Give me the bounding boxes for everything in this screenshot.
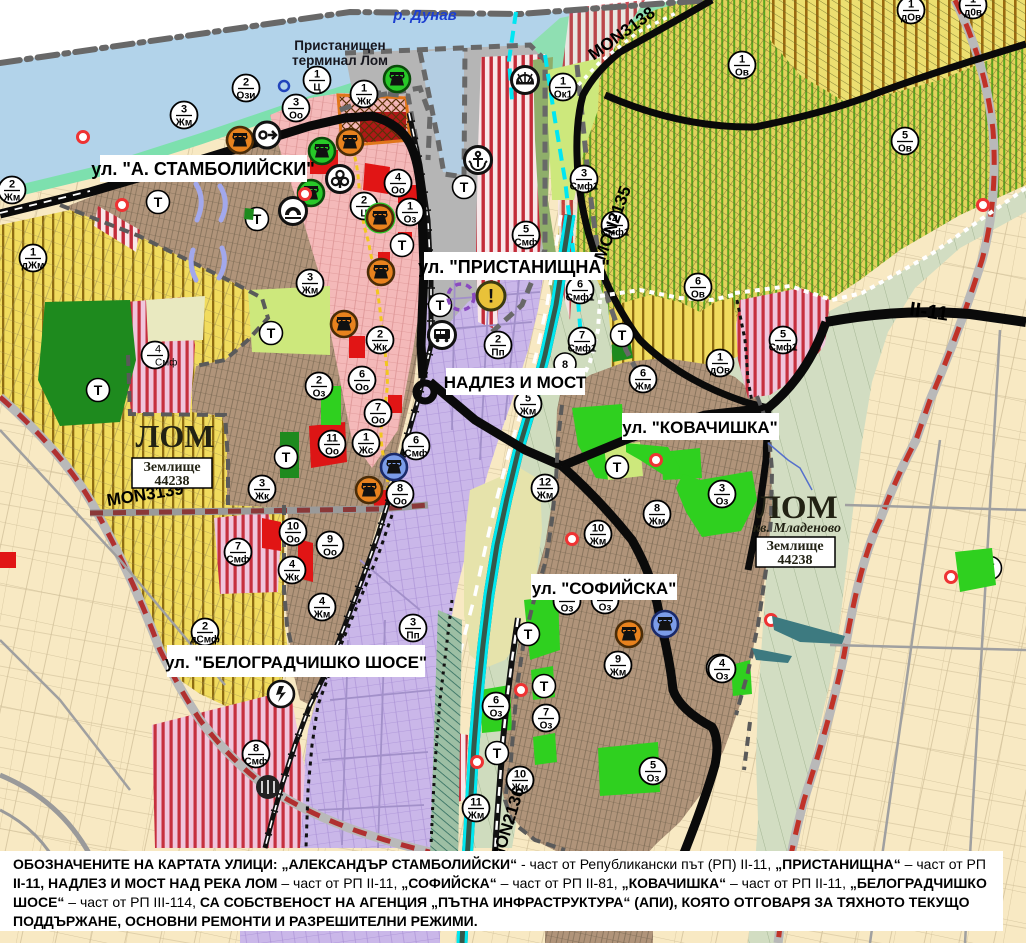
svg-text:Т: Т <box>540 678 549 694</box>
svg-text:Оз: Оз <box>716 672 729 683</box>
svg-text:12: 12 <box>539 477 551 489</box>
svg-text:1: 1 <box>363 432 369 444</box>
svg-text:4: 4 <box>719 658 726 670</box>
svg-text:Смф: Смф <box>244 756 267 768</box>
svg-text:11: 11 <box>470 797 482 809</box>
svg-text:Ов: Ов <box>691 290 705 301</box>
svg-text:ОБОЗНАЧЕНИТЕ НА КАРТАТА УЛИЦИ:: ОБОЗНАЧЕНИТЕ НА КАРТАТА УЛИЦИ: „АЛЕКСАНД… <box>13 855 986 872</box>
svg-text:дСмф: дСмф <box>190 634 220 646</box>
svg-text:2: 2 <box>361 195 367 207</box>
svg-text:6: 6 <box>577 279 583 291</box>
svg-text:Оо: Оо <box>323 548 337 559</box>
svg-text:Т: Т <box>267 325 276 341</box>
svg-text:Смф: Смф <box>514 237 537 249</box>
svg-text:Т: Т <box>94 382 103 398</box>
svg-text:3: 3 <box>259 478 265 490</box>
svg-text:8: 8 <box>397 483 403 495</box>
svg-text:Оз: Оз <box>647 774 660 785</box>
svg-text:терминал Лом: терминал Лом <box>292 53 388 68</box>
svg-text:Т: Т <box>613 459 622 475</box>
svg-text:11: 11 <box>326 433 338 445</box>
svg-text:Оо: Оо <box>355 383 369 394</box>
svg-text:Жк: Жк <box>356 97 372 108</box>
svg-text:5: 5 <box>523 224 529 236</box>
svg-text:Жм: Жм <box>519 407 536 418</box>
svg-text:Жм: Жм <box>313 610 330 621</box>
svg-text:Т: Т <box>436 297 445 313</box>
svg-text:Жк: Жк <box>284 573 300 584</box>
svg-text:Жм: Жм <box>467 811 484 822</box>
svg-text:5: 5 <box>780 329 786 341</box>
svg-text:Т: Т <box>253 211 262 227</box>
svg-text:5: 5 <box>902 130 908 142</box>
svg-text:Оо: Оо <box>393 497 407 508</box>
svg-text:4: 4 <box>395 172 402 184</box>
svg-text:Землище: Землище <box>766 539 823 554</box>
svg-text:Смф: Смф <box>155 357 177 369</box>
svg-text:10: 10 <box>514 769 526 781</box>
svg-text:дЖм: дЖм <box>22 261 45 272</box>
svg-text:ул. "КОВАЧИШКА": ул. "КОВАЧИШКА" <box>622 418 778 437</box>
svg-text:Смф1: Смф1 <box>570 181 599 193</box>
svg-text:дОв: дОв <box>710 366 730 377</box>
svg-text:кв. Младеново: кв. Младеново <box>753 521 841 536</box>
svg-text:3: 3 <box>410 617 416 629</box>
svg-text:10: 10 <box>287 521 299 533</box>
svg-text:Т: Т <box>154 194 163 210</box>
svg-text:Ц: Ц <box>313 83 321 94</box>
svg-text:Т: Т <box>282 449 291 465</box>
svg-text:6: 6 <box>493 695 499 707</box>
svg-text:Ози: Ози <box>237 91 256 102</box>
svg-text:44238: 44238 <box>155 474 190 489</box>
svg-text:7: 7 <box>579 330 585 342</box>
svg-text:Оз: Оз <box>490 709 503 720</box>
svg-text:Оо: Оо <box>325 447 339 458</box>
svg-text:4: 4 <box>155 344 161 356</box>
svg-text:Оз: Оз <box>404 215 417 226</box>
svg-text:Оо: Оо <box>371 416 385 427</box>
svg-text:10: 10 <box>592 523 604 535</box>
svg-text:2: 2 <box>495 334 501 346</box>
svg-text:ул. "СОФИЙСКА": ул. "СОФИЙСКА" <box>532 579 677 598</box>
svg-text:3: 3 <box>581 168 587 180</box>
svg-text:д0в: д0в <box>964 8 982 19</box>
svg-text:р. Дунав: р. Дунав <box>392 7 457 24</box>
svg-text:Ок1: Ок1 <box>554 90 573 101</box>
svg-text:Оо: Оо <box>391 186 405 197</box>
svg-text:Жм: Жм <box>648 517 665 528</box>
svg-text:Т: Т <box>618 327 627 343</box>
svg-text:3: 3 <box>719 483 725 495</box>
svg-text:Пп: Пп <box>491 348 504 359</box>
svg-text:6: 6 <box>359 369 365 381</box>
svg-text:8: 8 <box>654 503 660 515</box>
svg-text:Т: Т <box>398 237 407 253</box>
svg-text:Жм: Жм <box>3 193 20 204</box>
svg-text:Жм: Жм <box>609 668 626 679</box>
svg-text:6: 6 <box>640 368 646 380</box>
svg-text:6: 6 <box>413 435 419 447</box>
svg-text:Жм: Жм <box>175 118 192 129</box>
svg-text:Оз: Оз <box>599 603 612 614</box>
svg-text:1: 1 <box>717 352 723 364</box>
svg-text:44238: 44238 <box>778 553 813 568</box>
svg-text:4: 4 <box>289 559 296 571</box>
svg-text:ул. "А. СТАМБОЛИЙСКИ": ул. "А. СТАМБОЛИЙСКИ" <box>91 158 315 179</box>
svg-text:Землище: Землище <box>143 460 200 475</box>
svg-text:Т: Т <box>460 179 469 195</box>
svg-text:Т: Т <box>493 745 502 761</box>
svg-text:Жм: Жм <box>301 286 318 297</box>
svg-text:Жм: Жм <box>634 382 651 393</box>
svg-text:2: 2 <box>243 77 249 89</box>
svg-text:3: 3 <box>293 97 299 109</box>
svg-text:1: 1 <box>30 247 36 259</box>
svg-text:1: 1 <box>739 54 745 66</box>
svg-text:9: 9 <box>327 534 333 546</box>
svg-text:Оо: Оо <box>286 535 300 546</box>
svg-text:Оо: Оо <box>289 111 303 122</box>
svg-text:II-11, НАДЛЕЗ И МОСТ НАД РЕКА: II-11, НАДЛЕЗ И МОСТ НАД РЕКА ЛОМ – част… <box>13 874 987 891</box>
svg-text:ШОСЕ“ – част от РП III-114, СА: ШОСЕ“ – част от РП III-114, СА СОБСТВЕНО… <box>13 894 970 910</box>
svg-text:1: 1 <box>970 0 976 6</box>
svg-text:Жс: Жс <box>358 446 374 457</box>
svg-text:ЛОМ: ЛОМ <box>136 418 215 454</box>
svg-text:дОв: дОв <box>901 13 921 24</box>
svg-text:2: 2 <box>202 621 208 633</box>
svg-text:Оз: Оз <box>313 389 326 400</box>
svg-text:7: 7 <box>235 541 241 553</box>
svg-text:9: 9 <box>615 654 621 666</box>
svg-text:1: 1 <box>361 83 367 95</box>
svg-text:5: 5 <box>650 760 656 772</box>
svg-text:1: 1 <box>314 69 320 81</box>
svg-text:7: 7 <box>543 707 549 719</box>
svg-text:2: 2 <box>9 179 15 191</box>
svg-text:ПОДДЪРЖАНЕ, ОСНОВНИ РЕМОНТИ И: ПОДДЪРЖАНЕ, ОСНОВНИ РЕМОНТИ И РАЗРЕШИТЕЛ… <box>13 913 478 929</box>
svg-text:ул. "БЕЛОГРАДЧИШКО ШОСЕ": ул. "БЕЛОГРАДЧИШКО ШОСЕ" <box>165 653 427 672</box>
svg-text:Смф: Смф <box>226 554 249 566</box>
svg-text:Жк: Жк <box>254 492 270 503</box>
svg-text:Ов: Ов <box>898 144 912 155</box>
svg-text:1: 1 <box>560 76 566 88</box>
svg-text:6: 6 <box>695 276 701 288</box>
svg-text:ул. "ПРИСТАНИЩНА": ул. "ПРИСТАНИЩНА" <box>418 257 610 277</box>
svg-text:Ов: Ов <box>735 68 749 79</box>
svg-text:Пристанищен: Пристанищен <box>294 38 385 53</box>
svg-text:7: 7 <box>375 402 381 414</box>
svg-text:!: ! <box>488 287 494 308</box>
svg-text:Смф1: Смф1 <box>566 292 595 304</box>
svg-text:2: 2 <box>377 329 383 341</box>
svg-text:Смф: Смф <box>404 448 427 460</box>
svg-text:3: 3 <box>181 104 187 116</box>
svg-text:НАДЛЕЗ И МОСТ: НАДЛЕЗ И МОСТ <box>444 373 587 392</box>
svg-text:Жк: Жк <box>372 343 388 354</box>
svg-text:Оз: Оз <box>561 604 574 615</box>
svg-text:3: 3 <box>307 272 313 284</box>
svg-text:8: 8 <box>253 743 259 755</box>
svg-text:1: 1 <box>407 201 413 213</box>
svg-text:Пп: Пп <box>406 631 419 642</box>
svg-text:Жм: Жм <box>589 537 606 548</box>
svg-text:Оз: Оз <box>540 721 553 732</box>
svg-text:Т: Т <box>524 626 533 642</box>
svg-text:2: 2 <box>316 375 322 387</box>
svg-text:Смф1: Смф1 <box>769 342 798 354</box>
svg-text:Оз: Оз <box>716 497 729 508</box>
svg-text:Смф1: Смф1 <box>568 343 597 355</box>
svg-text:1: 1 <box>908 0 914 11</box>
svg-text:4: 4 <box>319 596 326 608</box>
svg-text:Жм: Жм <box>536 491 553 502</box>
